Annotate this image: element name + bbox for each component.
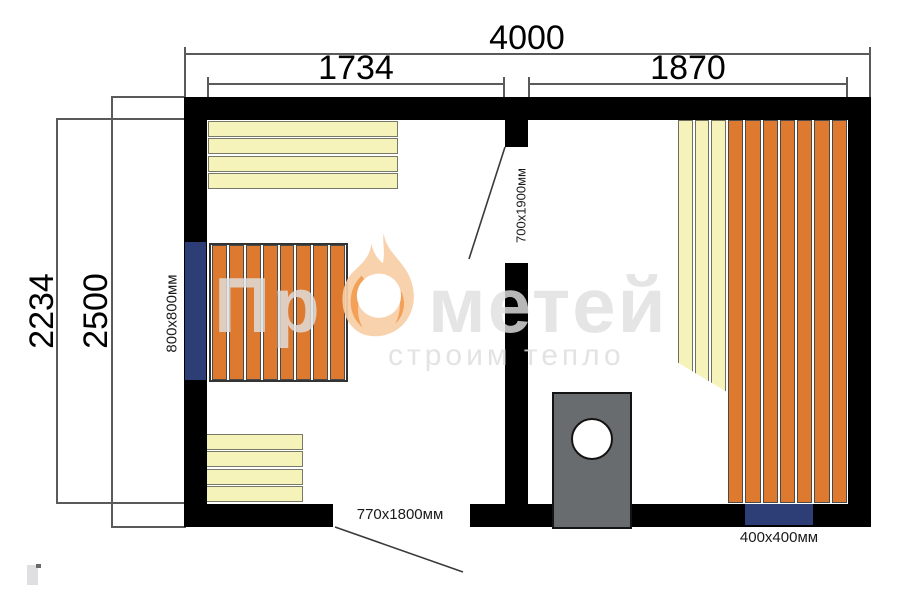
dim-right-room-width: 1870 bbox=[618, 51, 758, 85]
left-window-label: 800x800мм bbox=[165, 244, 180, 384]
dim-total-depth: 2500 bbox=[79, 241, 113, 381]
dim-inner-depth: 2234 bbox=[25, 241, 59, 381]
entry-door-label: 770x1800мм bbox=[330, 507, 470, 522]
partition-door-swing bbox=[469, 147, 505, 259]
partition-door-label: 700x1900мм bbox=[515, 136, 528, 276]
dim-total-width: 4000 bbox=[457, 21, 597, 55]
entry-door-swing bbox=[335, 527, 463, 572]
dim-left-room-width: 1734 bbox=[286, 51, 426, 85]
floor-plan-canvas: 4000 1734 1870 2234 2500 bbox=[0, 0, 900, 612]
bottom-window-label: 400x400мм bbox=[709, 530, 849, 545]
